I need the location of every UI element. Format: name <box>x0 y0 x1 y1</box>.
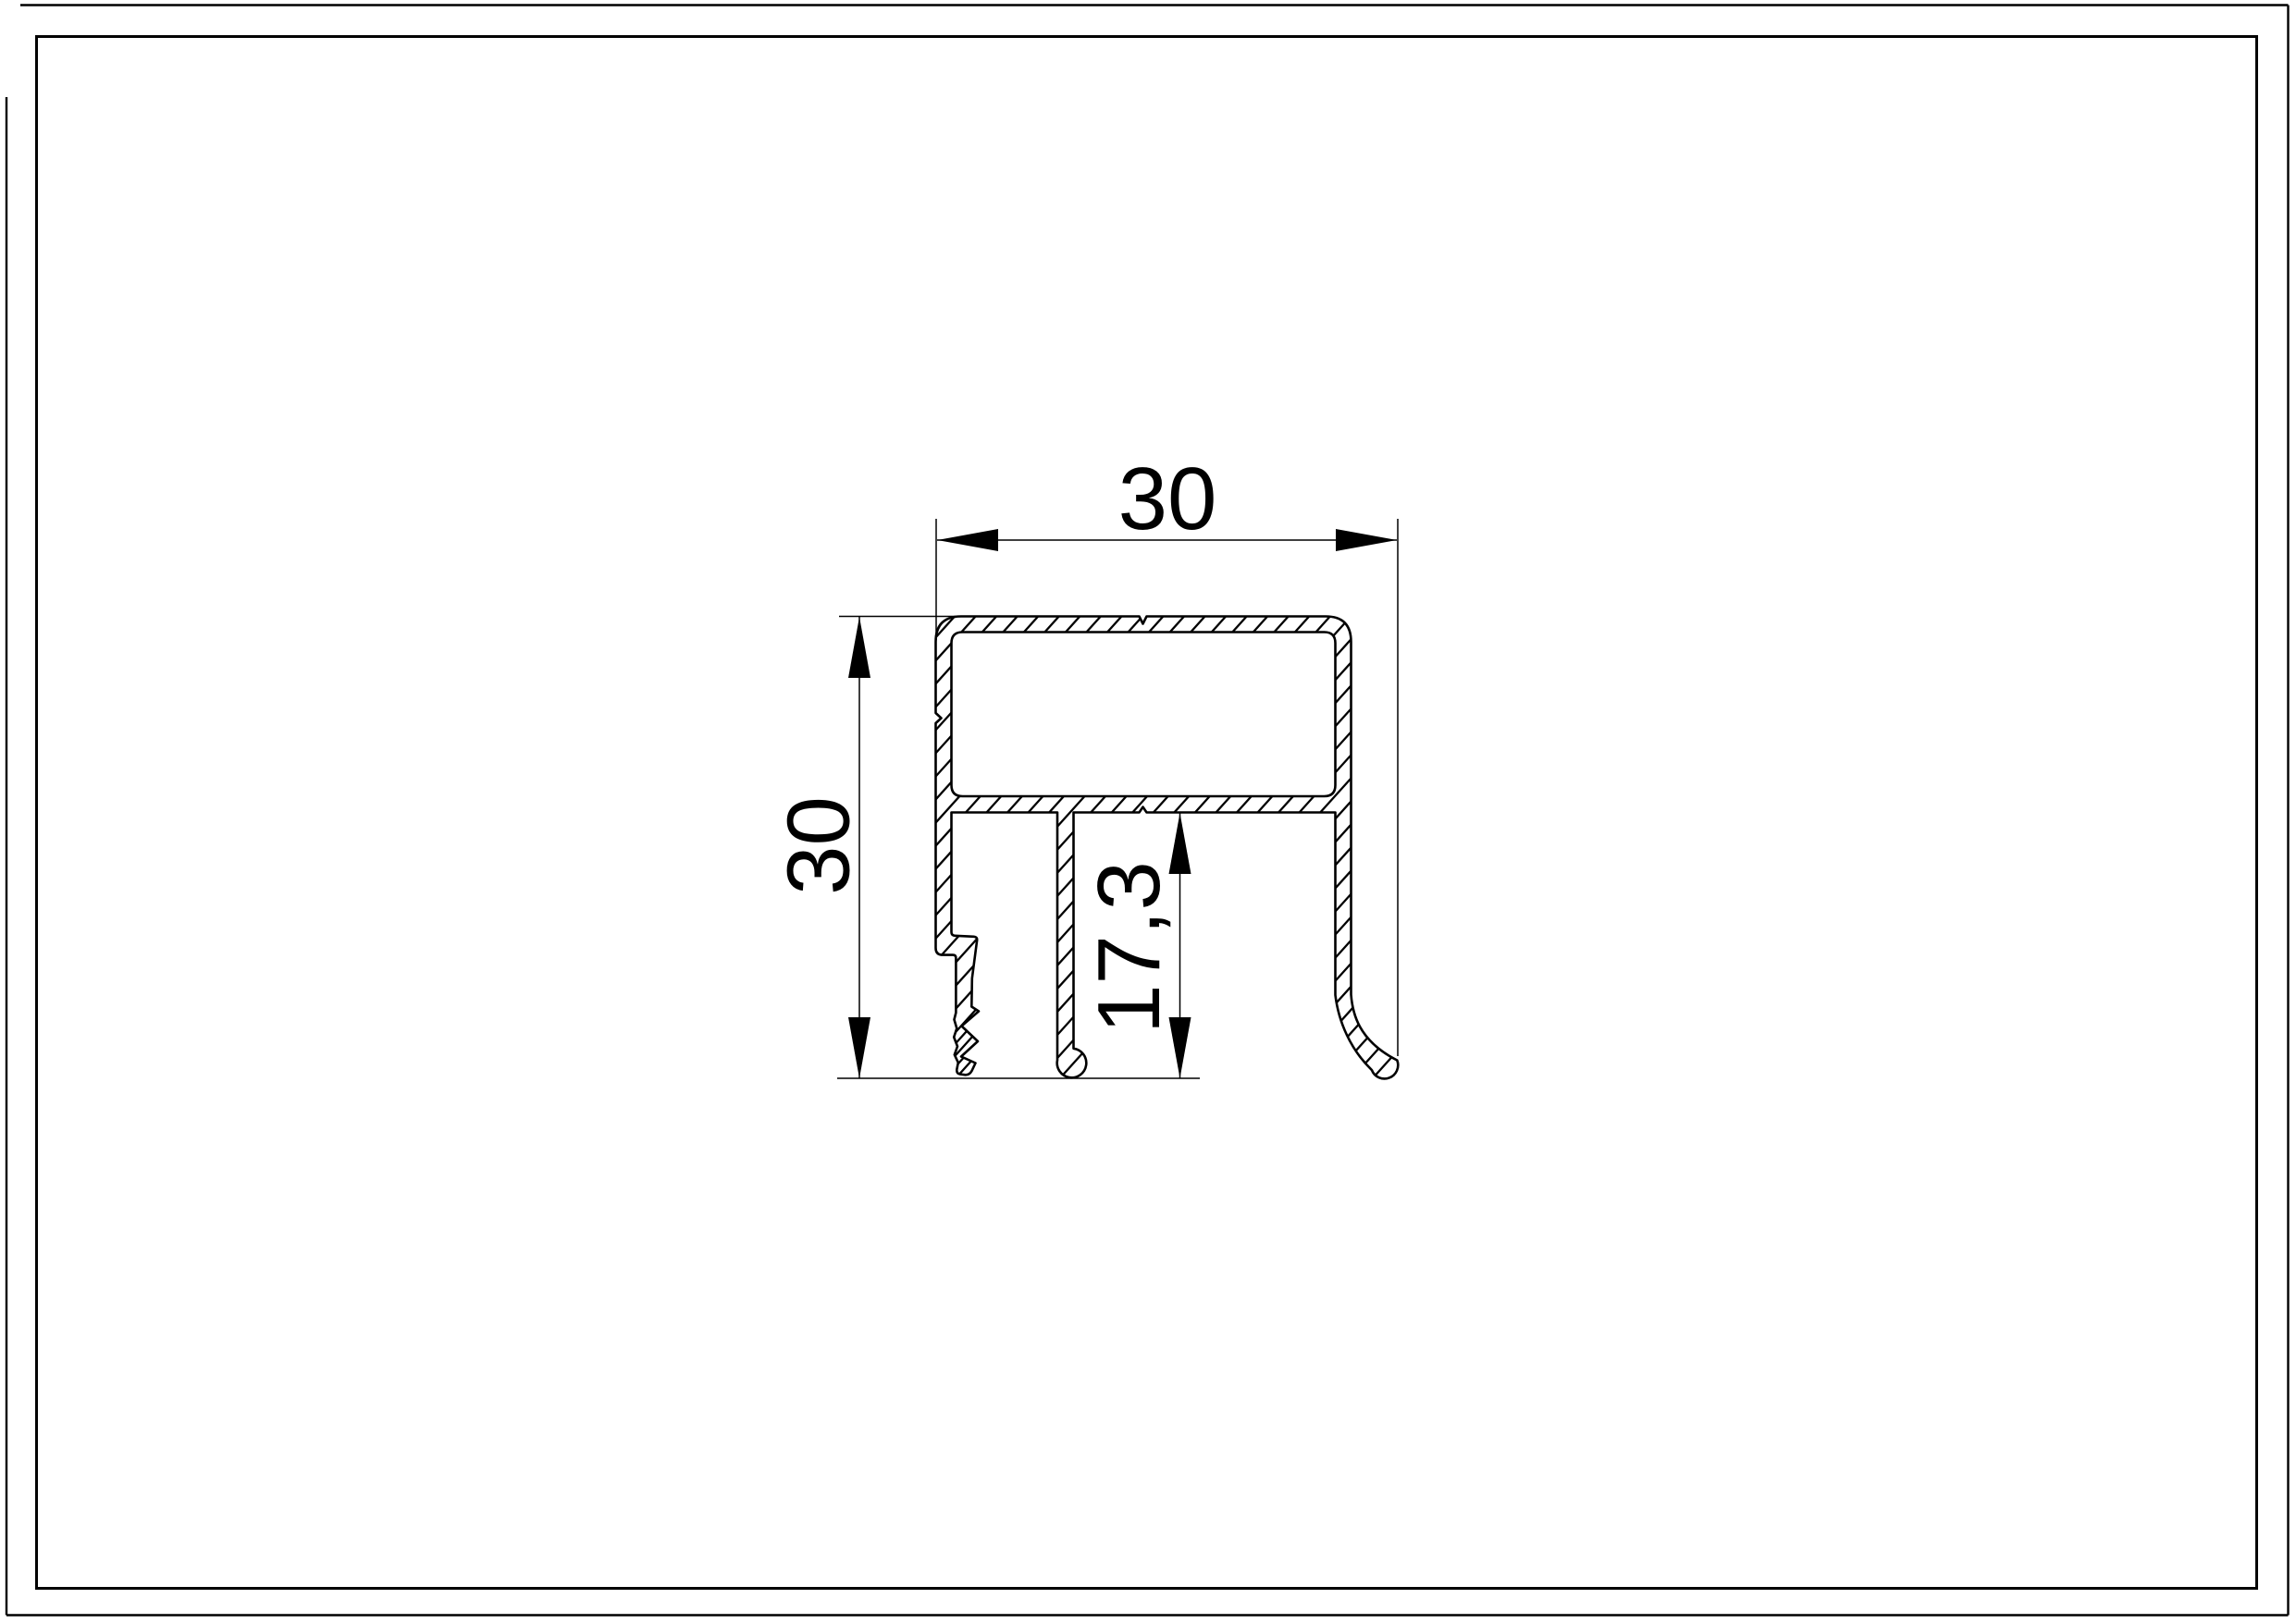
svg-text:17,3: 17,3 <box>1080 861 1179 1034</box>
svg-text:30: 30 <box>770 796 869 895</box>
svg-text:30: 30 <box>1118 449 1217 548</box>
